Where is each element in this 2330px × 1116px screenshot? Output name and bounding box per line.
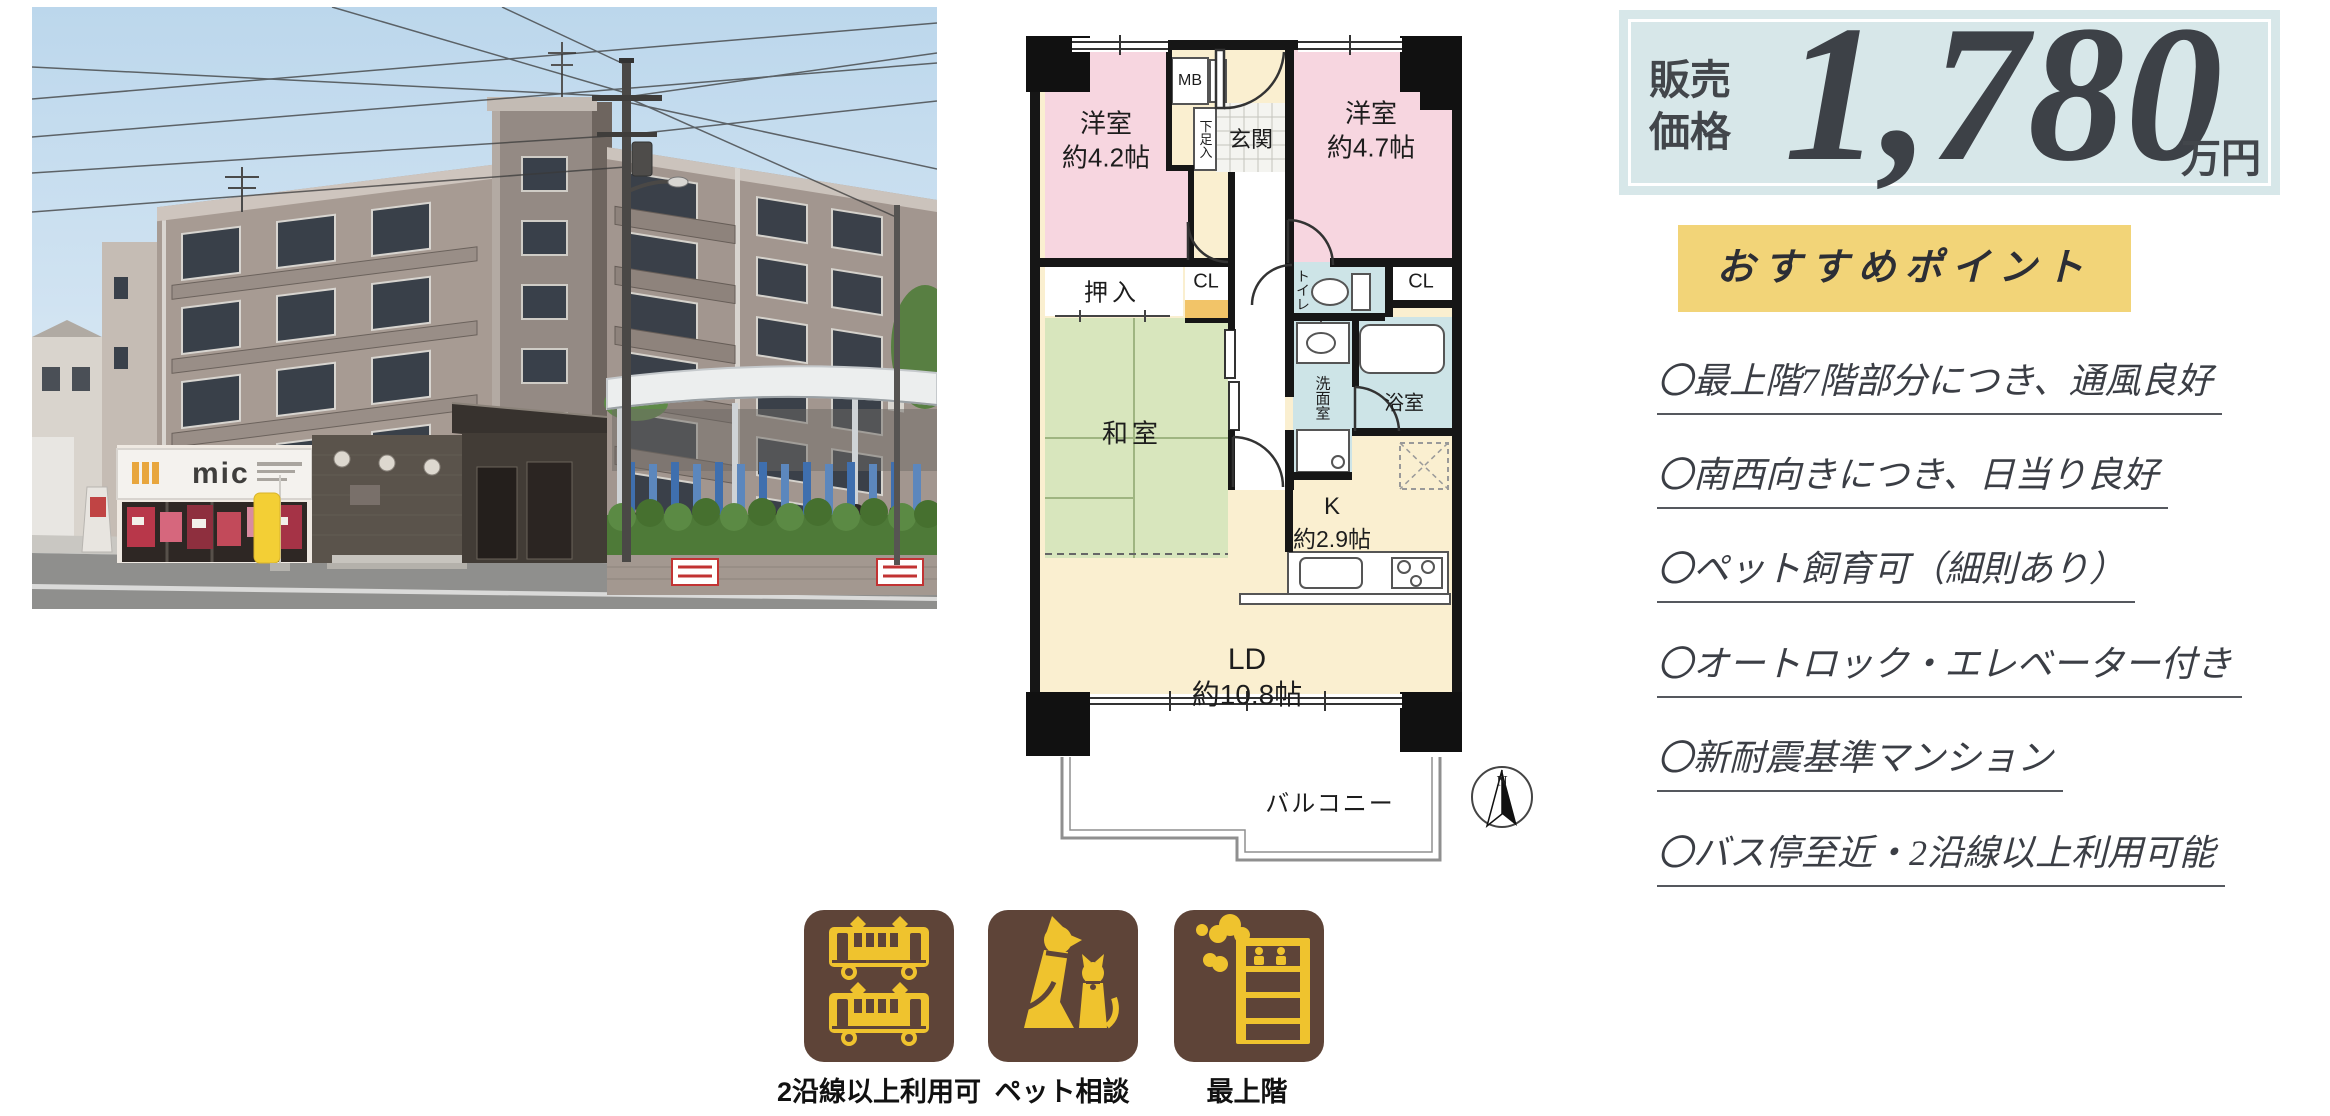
store-sign-text: mic <box>192 457 250 491</box>
balcony-label: バルコニー <box>1265 784 1395 819</box>
walls <box>1030 40 1462 706</box>
recommend-point: 〇新耐震基準マンション <box>1657 729 2063 792</box>
pipe-space <box>1210 60 1226 102</box>
vanity-sink <box>1297 323 1349 363</box>
washroom <box>1293 317 1352 475</box>
stove-burners <box>1398 561 1434 586</box>
price-panel: 販売 価格 1,780 万円 <box>1619 10 2280 195</box>
price-label: 販売 価格 <box>1649 54 1731 159</box>
round-lamp-icon <box>379 455 395 471</box>
kitchen-label: K <box>1324 493 1340 521</box>
bathtub <box>1360 325 1444 373</box>
windows <box>1072 35 1402 711</box>
balcony-outline <box>1062 757 1440 860</box>
no-parking-sign <box>672 559 718 585</box>
toilet-tank <box>1352 274 1370 310</box>
meter-box-label: MB <box>1178 72 1202 90</box>
listing-flyer: mic <box>0 0 2330 1116</box>
kitchen-sink <box>1300 558 1362 588</box>
japanese-room-label: 和室 <box>1102 414 1162 451</box>
top-floor-badge <box>1174 910 1324 1062</box>
kitchen-counter <box>1288 552 1448 594</box>
entrance-tiles <box>1216 103 1285 172</box>
room-west1-size: 約4.2帖 <box>1062 138 1150 175</box>
entrance-hall <box>1216 103 1285 172</box>
entrance-label: 玄関 <box>1229 122 1273 154</box>
toilet-bowl <box>1312 279 1348 305</box>
price-amount: 1,780 <box>1784 0 2223 204</box>
closet-right <box>1390 262 1452 300</box>
recommend-point: 〇南西向きにつき、日当り良好 <box>1657 446 2168 509</box>
compass-north-label: N <box>1497 774 1508 791</box>
price-unit: 万円 <box>2181 126 2261 184</box>
refrigerator-space <box>1400 443 1448 489</box>
recommend-point: 〇最上階7階部分につき、通風良好 <box>1657 352 2222 415</box>
utility-pole <box>894 205 900 565</box>
tatami-lines <box>1045 318 1228 558</box>
closet-center <box>1185 262 1228 300</box>
pet-badge <box>988 910 1138 1062</box>
bathroom <box>1352 317 1452 432</box>
hallway <box>1228 172 1285 490</box>
sliding-door <box>1225 330 1235 378</box>
plan-orange-box <box>1185 300 1228 320</box>
recommend-point: 〇ペット飼育可（細則あり） <box>1657 540 2135 603</box>
washroom-label: 洗面室 <box>1312 376 1333 421</box>
room-living-dining <box>1040 45 1452 700</box>
pet-icon <box>988 910 1138 1062</box>
stove <box>1392 558 1442 588</box>
price-label-top: 販売 <box>1649 54 1731 106</box>
room-west2-label: 洋室 <box>1345 94 1397 131</box>
pet-badge-label: ペット相談 <box>995 1070 1130 1109</box>
top-floor-icon <box>1174 910 1324 1062</box>
top-floor-badge-label: 最上階 <box>1207 1070 1288 1109</box>
room-west-1 <box>1045 165 1188 262</box>
sliding-door <box>1229 382 1239 430</box>
toilet-room <box>1290 262 1385 317</box>
living-label: LD <box>1228 643 1266 677</box>
kitchen-size: 約2.9帖 <box>1293 520 1371 554</box>
room-japanese <box>1045 318 1228 558</box>
closet-right-label: CL <box>1408 271 1434 294</box>
boundary-wall <box>607 555 937 595</box>
meter-box <box>1172 58 1208 104</box>
recommend-point: 〇オートロック・エレベーター付き <box>1657 635 2242 698</box>
compass <box>1472 767 1532 827</box>
closet-center-label: CL <box>1193 271 1219 294</box>
round-lamp-icon <box>334 451 350 467</box>
background-house-2 <box>32 437 74 549</box>
washer-pan <box>1297 430 1349 472</box>
doors <box>1188 50 1399 487</box>
room-west1-label: 洋室 <box>1080 104 1132 141</box>
living-size: 約10.8帖 <box>1192 673 1303 713</box>
a-frame-sign <box>82 487 112 552</box>
train-badge-label: 2沿線以上利用可 <box>777 1070 981 1109</box>
building-photo-illustration <box>32 7 937 609</box>
train-badge <box>804 910 954 1062</box>
banner-flag <box>254 493 280 563</box>
room-west-1 <box>1045 50 1166 168</box>
shoe-box <box>1194 108 1216 170</box>
room-west-2 <box>1290 50 1452 262</box>
round-lamp-icon <box>424 459 440 475</box>
street-lamp-icon <box>668 177 688 187</box>
pillars <box>1026 36 1462 756</box>
train-icon <box>804 910 954 1062</box>
toilet-label: トイレ <box>1293 269 1313 311</box>
closet-oshiire <box>1045 262 1183 316</box>
building-photo: mic <box>32 7 937 609</box>
shoe-box-label: 下足入 <box>1196 120 1215 159</box>
bathroom-label: 浴室 <box>1384 387 1424 416</box>
recommend-point: 〇バス停至近・2沿線以上利用可能 <box>1657 824 2225 887</box>
oshiire-label: 押入 <box>1084 273 1140 308</box>
room-west2-size: 約4.7帖 <box>1327 128 1415 165</box>
recommend-title: おすすめポイント <box>1678 225 2131 312</box>
price-label-bottom: 価格 <box>1649 106 1731 158</box>
